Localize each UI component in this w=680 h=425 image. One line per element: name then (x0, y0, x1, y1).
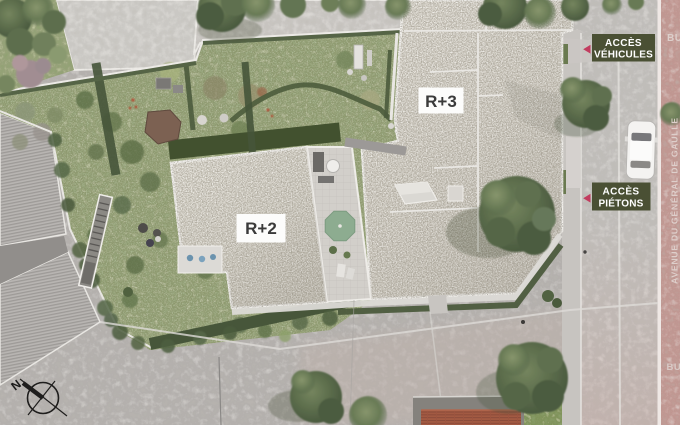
svg-text:R+2: R+2 (245, 219, 277, 238)
svg-text:ACCÈS: ACCÈS (605, 36, 642, 49)
svg-text:PIÉTONS: PIÉTONS (598, 197, 643, 210)
svg-text:BUS: BUS (667, 362, 680, 373)
svg-text:BUS: BUS (667, 33, 680, 44)
svg-text:R+3: R+3 (425, 92, 457, 111)
svg-text:VÉHICULES: VÉHICULES (594, 48, 653, 61)
svg-text:ACCÈS: ACCÈS (602, 185, 639, 198)
svg-text:AVENUE DU GÉNÉRAL DE GAULLE: AVENUE DU GÉNÉRAL DE GAULLE (670, 117, 680, 284)
